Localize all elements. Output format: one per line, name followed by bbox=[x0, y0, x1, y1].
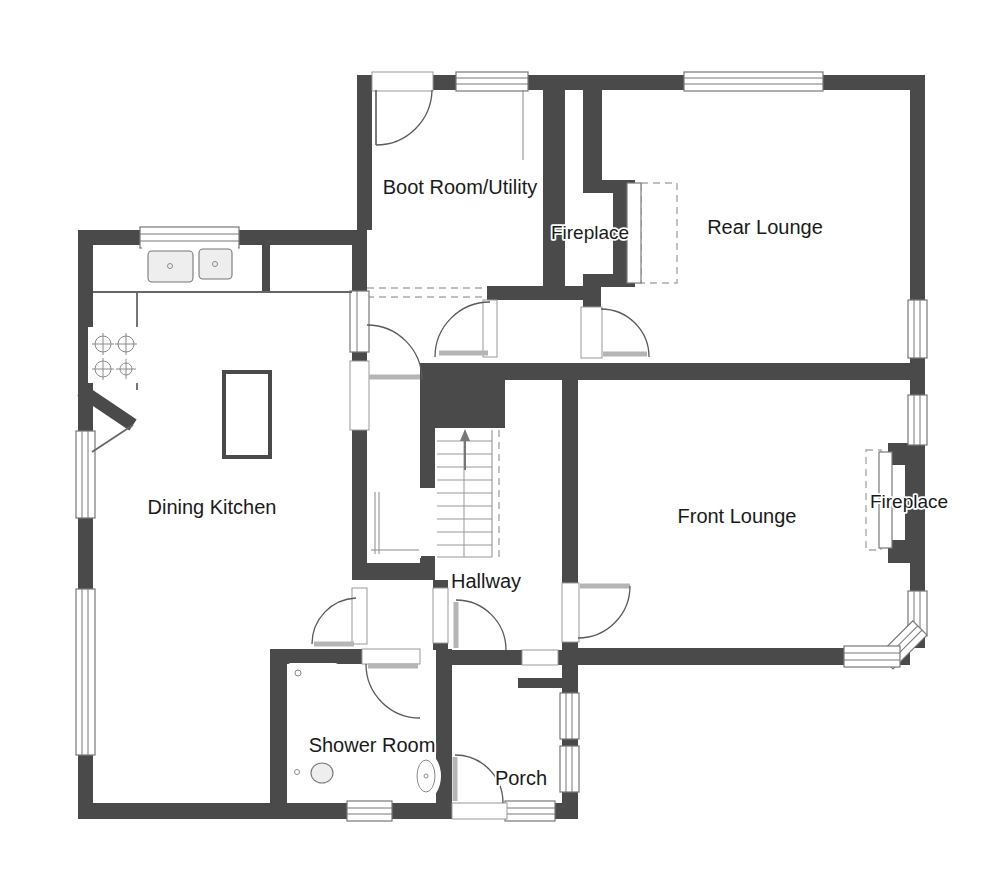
appliance-unit bbox=[369, 488, 421, 558]
wall-segment bbox=[433, 643, 448, 650]
toilet bbox=[288, 756, 339, 790]
label-dining-kitchen: Dining Kitchen bbox=[148, 496, 277, 518]
window bbox=[76, 589, 95, 755]
wash-basin bbox=[411, 753, 441, 799]
door-jamb bbox=[483, 300, 497, 357]
window bbox=[505, 801, 555, 821]
label-front-fireplace: Fireplace bbox=[870, 491, 948, 512]
window bbox=[560, 693, 579, 739]
hob bbox=[88, 327, 138, 383]
wall-segment bbox=[357, 75, 372, 90]
floor-plan-drawing: Boot Room/Utility Fireplace Rear Lounge … bbox=[0, 0, 1000, 895]
wall-segment bbox=[420, 428, 435, 488]
wall-segment bbox=[583, 85, 602, 180]
door-jamb bbox=[562, 583, 579, 642]
fire-surround bbox=[627, 183, 641, 283]
window bbox=[140, 227, 239, 248]
wall-segment bbox=[78, 803, 349, 819]
wall-segment bbox=[262, 245, 270, 292]
window bbox=[350, 291, 369, 352]
door-jamb bbox=[352, 588, 367, 644]
window bbox=[560, 746, 579, 792]
wall-segment bbox=[357, 88, 372, 230]
wall-segment bbox=[78, 518, 93, 591]
door-jamb bbox=[452, 803, 507, 819]
wall-segment bbox=[910, 563, 925, 593]
wall-segment bbox=[270, 649, 287, 803]
wall-segment bbox=[821, 75, 925, 90]
label-boot-room-utility: Boot Room/Utility bbox=[383, 176, 538, 198]
stairwell-block bbox=[420, 363, 505, 428]
wall-segment bbox=[518, 678, 562, 688]
wall-segment bbox=[910, 88, 925, 302]
label-porch: Porch bbox=[495, 767, 547, 789]
floor-plan-page: Boot Room/Utility Fireplace Rear Lounge … bbox=[0, 0, 1000, 895]
fireplace-wall bbox=[888, 540, 925, 563]
wall-segment bbox=[433, 75, 458, 90]
kitchen-island bbox=[224, 372, 270, 457]
plan-background bbox=[0, 0, 1000, 895]
shower-tray bbox=[288, 663, 338, 715]
door-jamb bbox=[362, 649, 420, 664]
window bbox=[347, 801, 392, 821]
wall-segment bbox=[562, 380, 578, 583]
wall-segment bbox=[448, 650, 522, 665]
fireplace-wall bbox=[583, 274, 613, 287]
open-plan-divider bbox=[367, 285, 487, 300]
wall-segment bbox=[270, 649, 362, 664]
wall-segment bbox=[433, 580, 448, 588]
wall-segment bbox=[543, 85, 565, 300]
wall-segment bbox=[578, 648, 846, 665]
label-rear-fireplace: Fireplace bbox=[551, 222, 629, 243]
label-shower-room: Shower Room bbox=[309, 734, 436, 756]
wall-segment bbox=[562, 642, 578, 695]
fireplace-wall bbox=[888, 443, 925, 465]
window bbox=[908, 300, 927, 358]
wall-segment bbox=[352, 245, 367, 293]
label-rear-lounge: Rear Lounge bbox=[707, 216, 823, 238]
wall-segment bbox=[391, 803, 452, 819]
label-hallway: Hallway bbox=[451, 570, 521, 592]
label-front-lounge: Front Lounge bbox=[678, 505, 797, 527]
wall-segment bbox=[352, 428, 367, 563]
wall-segment bbox=[352, 563, 433, 580]
window bbox=[76, 431, 95, 518]
door-jamb bbox=[581, 307, 602, 358]
wall-segment bbox=[562, 792, 578, 819]
fireplace-wall bbox=[583, 180, 613, 193]
opening-jamb bbox=[350, 361, 369, 430]
door-jamb bbox=[433, 588, 448, 643]
wall-segment bbox=[236, 230, 367, 245]
door-jamb bbox=[522, 650, 558, 665]
door-jamb bbox=[372, 72, 433, 91]
window bbox=[908, 395, 927, 445]
window bbox=[684, 72, 823, 91]
window bbox=[456, 72, 528, 91]
window bbox=[844, 646, 900, 667]
kitchen-sink bbox=[142, 245, 238, 289]
